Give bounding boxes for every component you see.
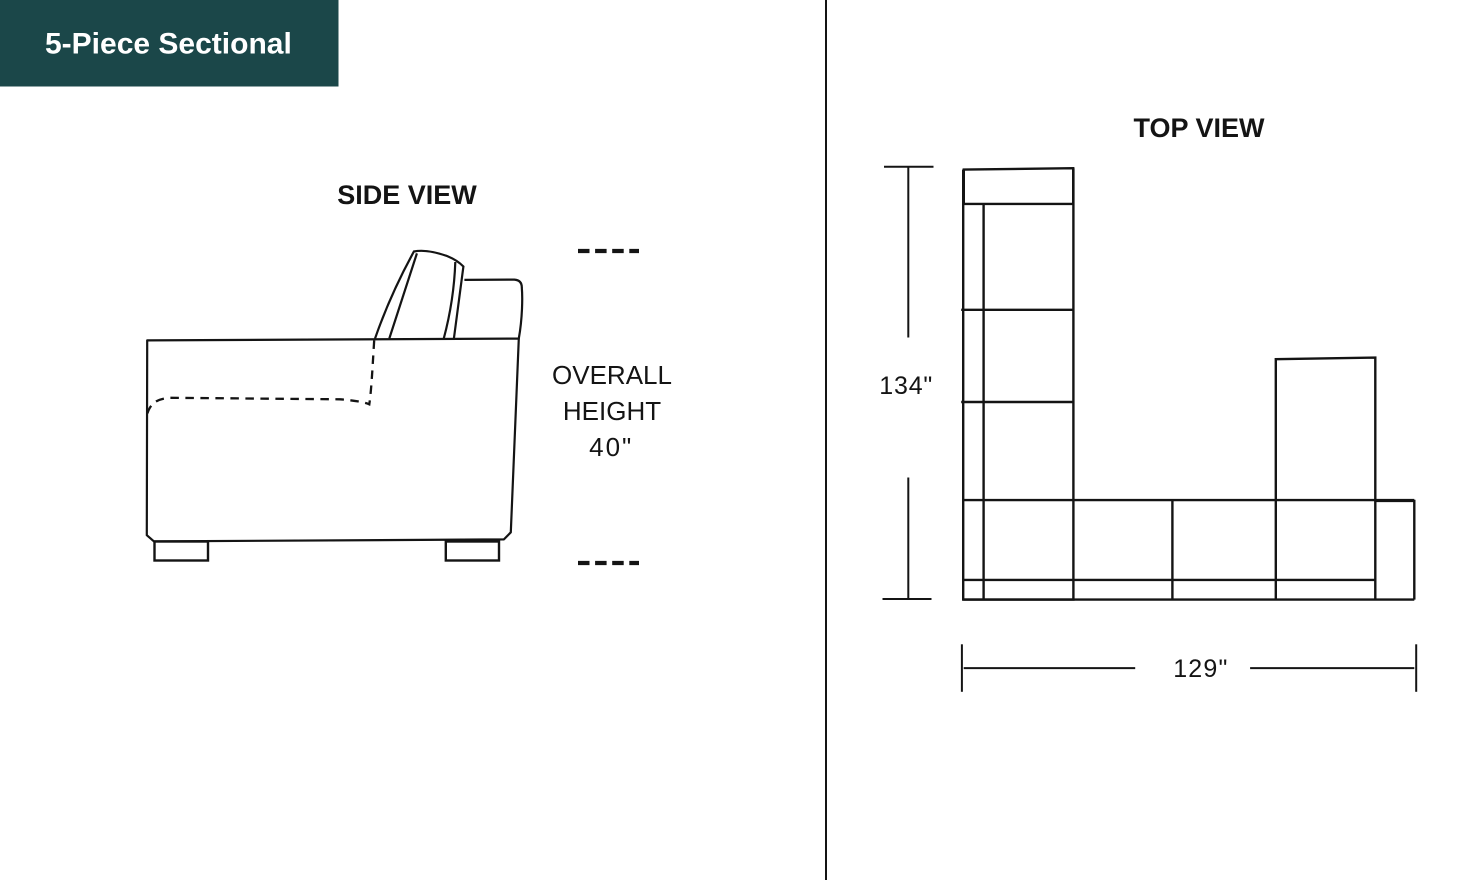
svg-text:5-Piece Sectional: 5-Piece Sectional <box>45 28 292 61</box>
svg-text:TOP VIEW: TOP VIEW <box>1133 113 1265 143</box>
svg-text:129": 129" <box>1173 655 1228 683</box>
svg-text:HEIGHT: HEIGHT <box>563 396 661 426</box>
svg-text:40": 40" <box>589 432 633 462</box>
svg-text:SIDE VIEW: SIDE VIEW <box>337 180 477 210</box>
svg-text:134": 134" <box>879 372 933 400</box>
svg-text:OVERALL: OVERALL <box>552 360 672 390</box>
